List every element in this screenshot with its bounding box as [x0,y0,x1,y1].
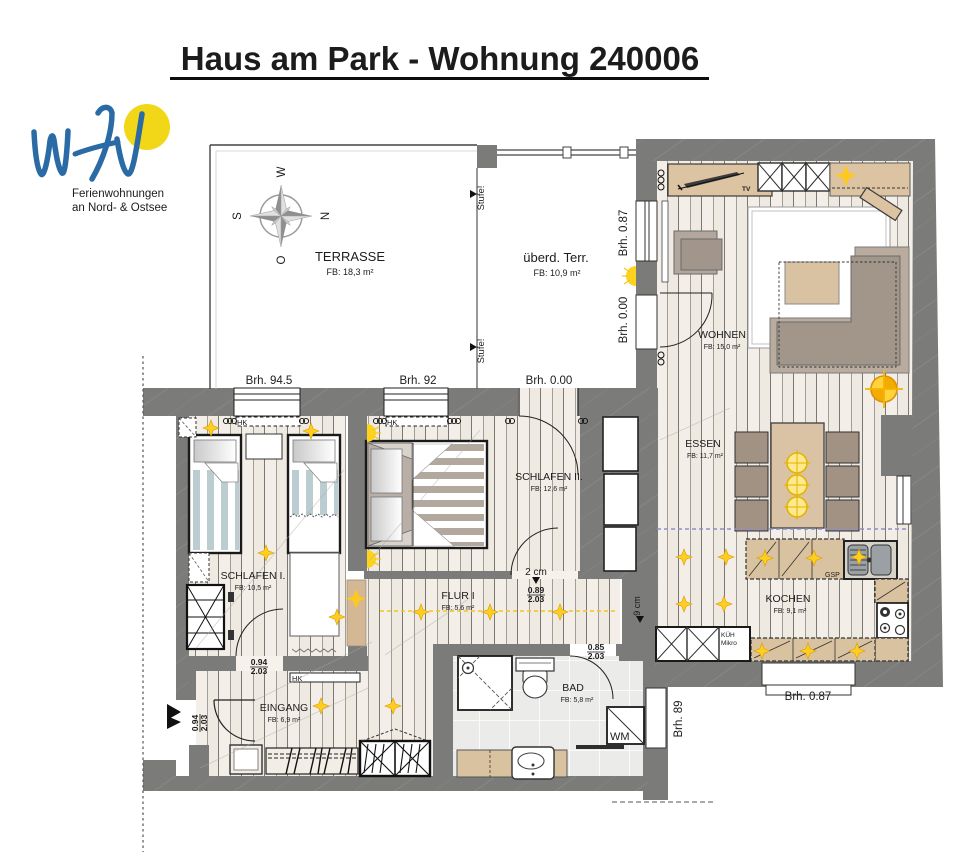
svg-text:an Nord- & Ostsee: an Nord- & Ostsee [72,202,167,214]
svg-text:Brh. 0.00: Brh. 0.00 [526,375,573,387]
svg-text:FB: 11,7 m²: FB: 11,7 m² [687,453,724,460]
svg-text:FB: 10,9 m²: FB: 10,9 m² [533,268,580,278]
svg-text:KOCHEN: KOCHEN [766,593,811,605]
svg-text:SCHLAFEN I.: SCHLAFEN I. [221,570,286,582]
svg-text:FB: 12,6 m²: FB: 12,6 m² [531,486,568,493]
svg-text:2.03: 2.03 [528,594,545,604]
svg-text:FB: 5,8 m²: FB: 5,8 m² [561,697,594,704]
svg-text:EINGANG: EINGANG [260,702,308,714]
svg-text:Brh. 89: Brh. 89 [673,700,685,737]
svg-text:ESSEN: ESSEN [685,438,721,450]
svg-text:GSP: GSP [825,572,840,579]
svg-text:Ferienwohnungen: Ferienwohnungen [72,188,164,200]
svg-text:SCHLAFEN II.: SCHLAFEN II. [515,471,583,483]
svg-text:2 cm: 2 cm [525,567,547,578]
svg-text:BAD: BAD [562,682,584,694]
svg-text:KÜH: KÜH [721,631,735,639]
svg-text:Mikro: Mikro [721,640,737,647]
svg-text:HK: HK [387,418,397,427]
svg-text:Stufe!: Stufe! [476,186,487,211]
svg-text:FB: 15,0 m²: FB: 15,0 m² [704,344,741,351]
svg-text:Brh. 0.87: Brh. 0.87 [618,210,630,257]
svg-text:W: W [276,166,288,177]
svg-text:2.03: 2.03 [588,651,605,661]
svg-text:Brh. 94.5: Brh. 94.5 [246,375,293,387]
svg-text:2.03: 2.03 [251,666,268,676]
svg-text:Haus am Park - Wohnung 240006: Haus am Park - Wohnung 240006 [181,40,699,77]
svg-text:Brh. 0.87: Brh. 0.87 [785,691,832,703]
svg-text:WM: WM [610,731,630,743]
svg-text:FLUR I: FLUR I [441,590,474,602]
svg-text:9 cm: 9 cm [632,596,642,616]
svg-text:FB: 10,5 m²: FB: 10,5 m² [235,585,272,592]
svg-text:2.03: 2.03 [199,714,209,731]
svg-text:WOHNEN: WOHNEN [698,329,746,341]
svg-text:S: S [232,212,244,220]
svg-text:Stufe!: Stufe! [476,339,487,364]
svg-text:TV: TV [742,186,751,193]
svg-text:FB: 9,1 m²: FB: 9,1 m² [774,608,807,615]
svg-text:Brh. 92: Brh. 92 [399,375,436,387]
svg-text:FB: 6,9 m²: FB: 6,9 m² [268,717,301,724]
svg-text:FB: 18,3 m²: FB: 18,3 m² [326,267,373,277]
svg-text:TERRASSE: TERRASSE [315,249,385,264]
svg-text:Brh. 0.00: Brh. 0.00 [618,297,630,344]
svg-text:HK: HK [237,418,247,427]
svg-text:O: O [276,255,288,264]
svg-text:N: N [320,212,332,220]
svg-text:überd. Terr.: überd. Terr. [523,250,589,265]
